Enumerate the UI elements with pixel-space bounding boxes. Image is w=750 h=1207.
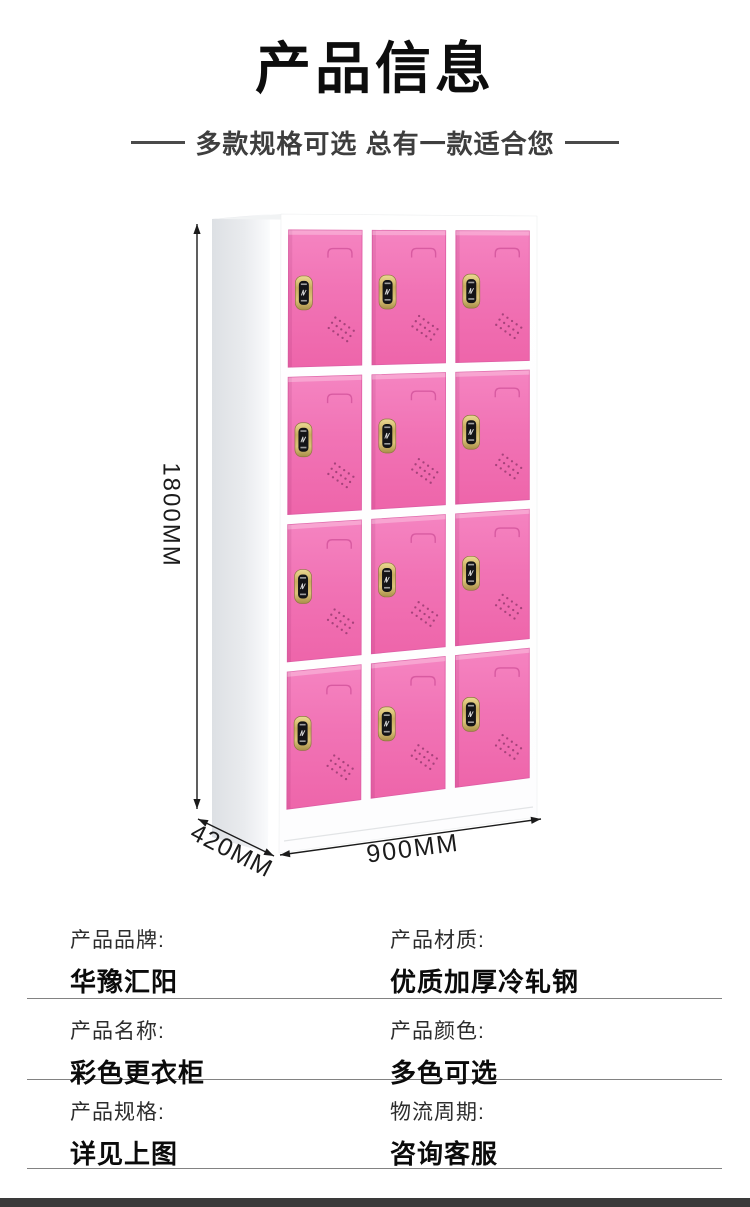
spec-label: 产品规格:: [70, 1096, 178, 1126]
height-dimension-arrow: [193, 224, 200, 809]
spec-cell-name: 产品名称: 彩色更衣柜: [70, 1015, 205, 1090]
cabinet-side-panel: [212, 214, 270, 853]
door-lock: [462, 697, 479, 731]
spec-table: 产品品牌: 华豫汇阳 产品材质: 优质加厚冷轧钢 产品名称: 彩色更衣柜 产品颜…: [27, 908, 722, 1169]
door-lock: [295, 570, 312, 604]
spec-value: 详见上图: [70, 1134, 178, 1171]
door-lock: [379, 419, 396, 453]
subtitle-dash-left: [131, 141, 185, 144]
spec-row: 产品规格: 详见上图 物流周期: 咨询客服: [27, 1080, 722, 1169]
spec-cell-spec: 产品规格: 详见上图: [70, 1096, 178, 1171]
spec-value: 优质加厚冷轧钢: [390, 962, 579, 999]
spec-value: 华豫汇阳: [70, 962, 178, 999]
spec-row: 产品品牌: 华豫汇阳 产品材质: 优质加厚冷轧钢: [27, 908, 722, 999]
locker-door: [372, 230, 446, 364]
subtitle-dash-right: [565, 141, 619, 144]
spec-label: 产品品牌:: [70, 924, 178, 954]
height-dimension-label: 1800MM: [158, 462, 185, 567]
locker-door: [372, 373, 446, 510]
door-lock: [463, 556, 480, 590]
product-info-page: 产品信息 多款规格可选 总有一款适合您 1800MM420MM900MM 产品品…: [0, 0, 750, 1207]
spec-cell-color: 产品颜色: 多色可选: [390, 1015, 498, 1090]
locker-door: [287, 520, 361, 662]
door-lock: [295, 276, 312, 310]
door-lock: [295, 423, 312, 457]
door-lock: [378, 707, 395, 741]
locker-door: [455, 648, 529, 787]
spec-cell-brand: 产品品牌: 华豫汇阳: [70, 924, 178, 999]
spec-label: 产品材质:: [390, 924, 579, 954]
spec-row: 产品名称: 彩色更衣柜 产品颜色: 多色可选: [27, 999, 722, 1080]
door-lock: [294, 716, 311, 750]
spec-label: 物流周期:: [390, 1096, 498, 1126]
door-lock: [379, 275, 396, 309]
locker-door: [287, 665, 361, 809]
subtitle-text: 多款规格可选 总有一款适合您: [195, 124, 554, 161]
spec-cell-material: 产品材质: 优质加厚冷轧钢: [390, 924, 579, 999]
door-lock: [379, 563, 396, 597]
locker-door: [288, 230, 362, 367]
footer-bar: [0, 1198, 750, 1207]
spec-cell-logistics: 物流周期: 咨询客服: [390, 1096, 498, 1171]
spec-value: 咨询客服: [390, 1134, 498, 1171]
product-illustration: 1800MM420MM900MM: [150, 195, 580, 895]
locker-door: [455, 509, 529, 646]
locker-door: [371, 515, 445, 654]
spec-label: 产品名称:: [70, 1015, 205, 1045]
page-subtitle: 多款规格可选 总有一款适合您: [0, 124, 750, 161]
door-lock: [463, 274, 480, 308]
locker-door: [288, 375, 362, 514]
spec-label: 产品颜色:: [390, 1015, 498, 1045]
locker-door: [456, 231, 530, 363]
locker-door: [456, 370, 530, 504]
door-lock: [463, 415, 480, 449]
page-title: 产品信息: [0, 24, 750, 105]
locker-door: [371, 657, 445, 799]
